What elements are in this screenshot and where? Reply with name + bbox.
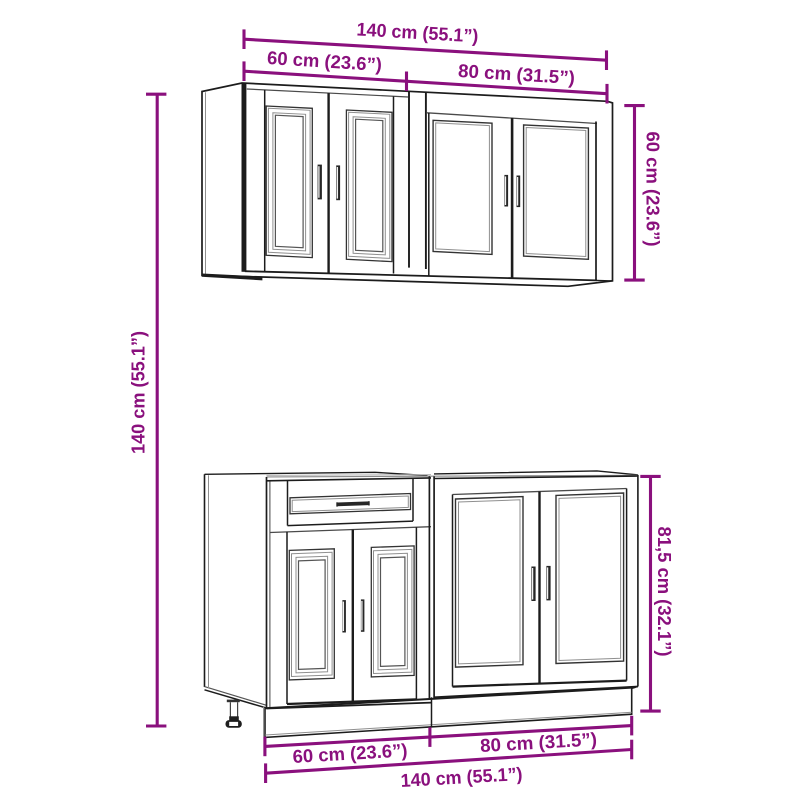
- svg-text:60 cm (23.6”): 60 cm (23.6”): [642, 132, 663, 247]
- svg-text:140 cm (55.1”): 140 cm (55.1”): [128, 331, 149, 454]
- svg-text:81,5 cm (32.1”): 81,5 cm (32.1”): [654, 527, 675, 657]
